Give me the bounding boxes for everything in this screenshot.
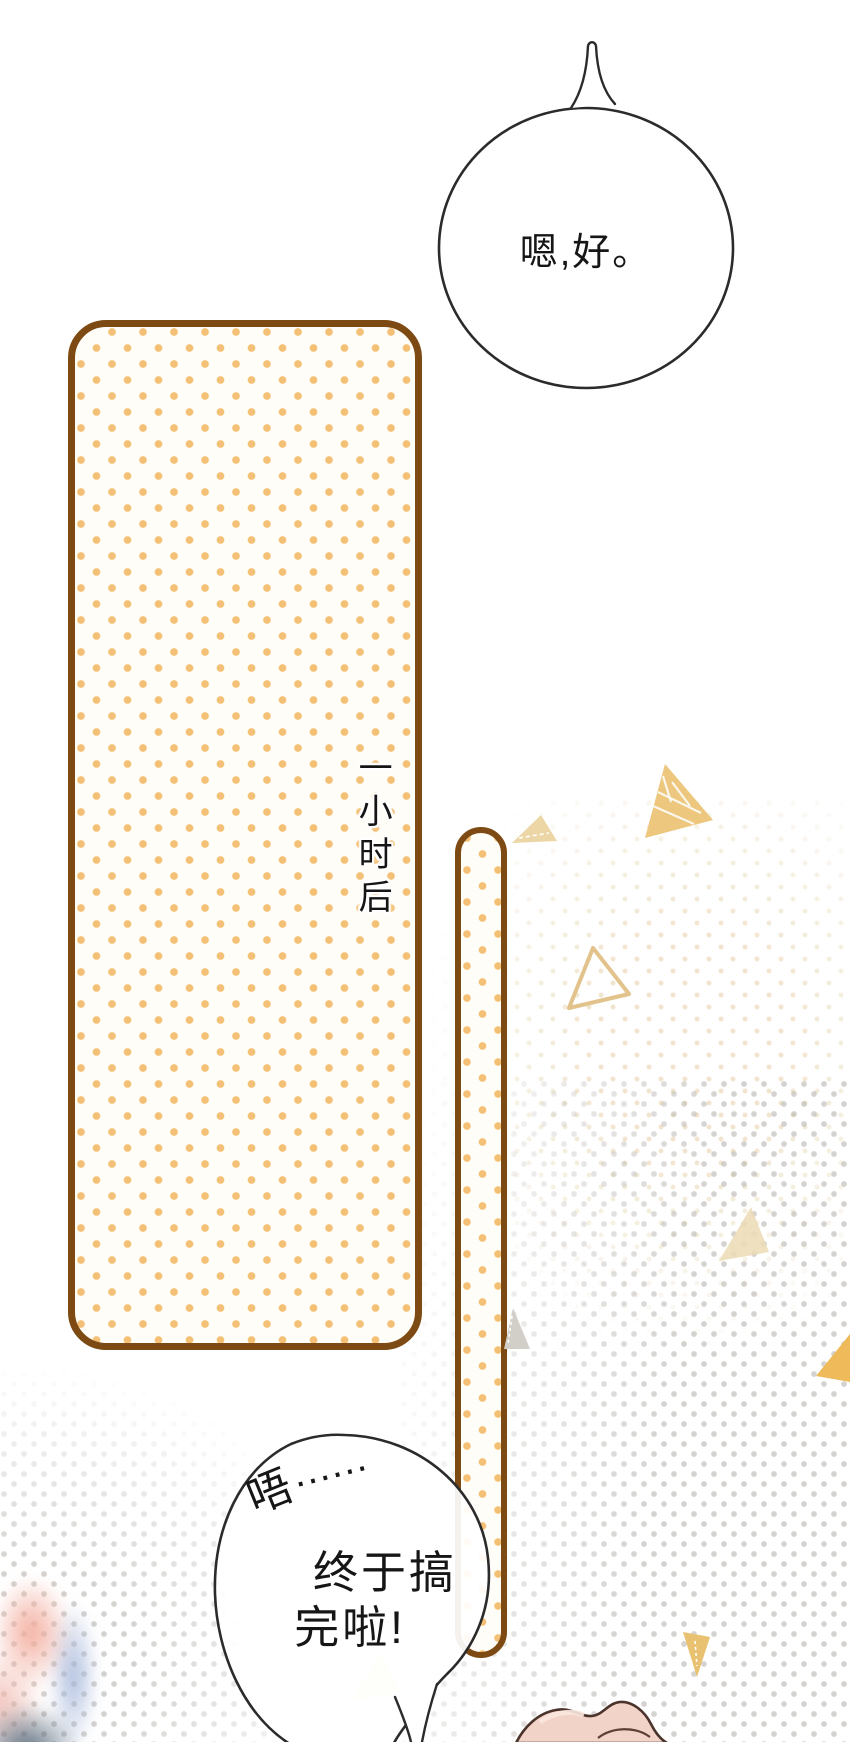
blurred-foreground-object (0, 1580, 118, 1742)
tan-triangle-small-icon (512, 815, 557, 843)
cream-triangle-behind-bubble-icon (352, 1651, 401, 1700)
tan-triangle-right-edge-icon (719, 1207, 769, 1261)
hand-shape (516, 1702, 667, 1742)
time-caption: 一小时后 (352, 750, 391, 922)
speech-bubble-top (439, 42, 733, 388)
bubble-bottom-murmur-dots: …… (286, 1435, 371, 1497)
bubble-top-text: 嗯,好。 (436, 221, 736, 276)
gray-stitch-triangle-icon (504, 1308, 530, 1349)
gold-sketch-triangle-icon (645, 764, 713, 838)
comic-page: 一小时后 嗯,好。 唔 …… 终于搞 完啦! (0, 0, 850, 1742)
polkadot-panel-pill (455, 827, 507, 1658)
gold-triangle-down-icon (683, 1632, 710, 1677)
gold-triangle-right-edge-icon (816, 1334, 850, 1382)
bubble-bottom-line2: 完啦! (225, 1591, 475, 1656)
tan-outline-triangle-icon (569, 948, 629, 1008)
